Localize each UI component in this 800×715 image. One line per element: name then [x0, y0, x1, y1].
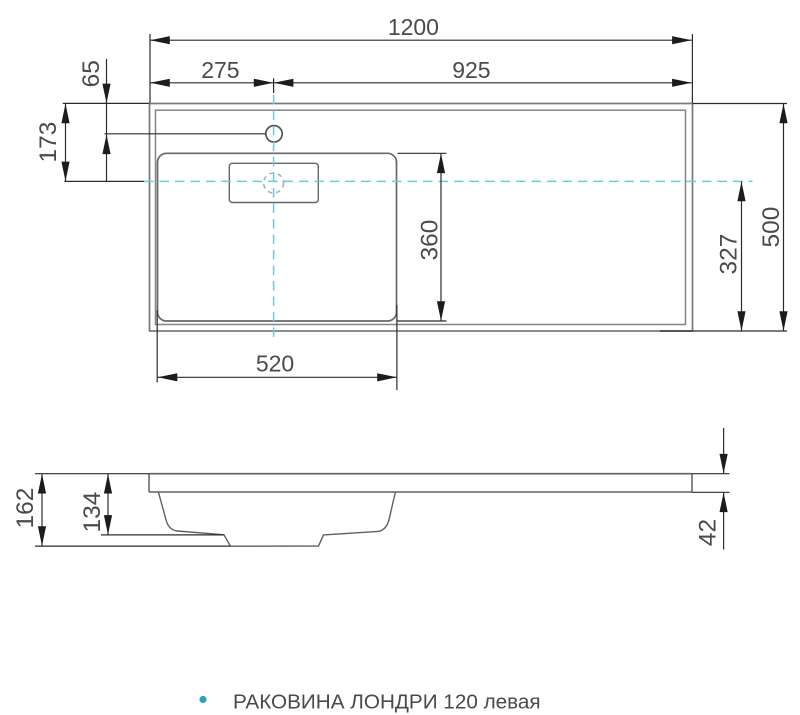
svg-text:РАКОВИНА ЛОНДРИ 120 левая: РАКОВИНА ЛОНДРИ 120 левая: [233, 691, 541, 714]
svg-text:327: 327: [715, 234, 742, 275]
svg-text:65: 65: [78, 60, 105, 87]
svg-text:275: 275: [201, 57, 239, 83]
svg-text:925: 925: [452, 57, 490, 83]
svg-text:162: 162: [12, 488, 39, 529]
svg-text:520: 520: [256, 351, 294, 377]
svg-text:1200: 1200: [388, 14, 439, 40]
svg-text:134: 134: [79, 492, 106, 533]
svg-text:173: 173: [35, 122, 62, 163]
svg-text:360: 360: [416, 220, 443, 261]
svg-text:500: 500: [758, 207, 785, 248]
svg-text:42: 42: [694, 519, 721, 546]
